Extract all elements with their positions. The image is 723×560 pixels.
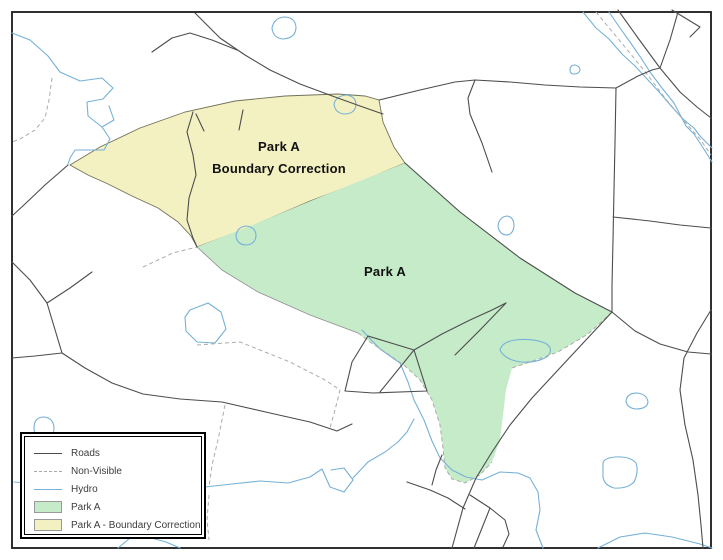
legend-row-non-visible: Non-Visible <box>25 462 201 480</box>
park-a-label: Park A <box>364 261 406 283</box>
pond-tiny-topright <box>570 65 580 74</box>
dashed-upper-left <box>12 78 52 142</box>
legend-box: Roads Non-Visible Hydro Park A <box>20 432 206 539</box>
correction-label-line1: Park A <box>212 136 346 158</box>
road-vertical-right <box>612 88 616 312</box>
road-left-edge-link <box>12 353 62 358</box>
legend-row-correction: Park A - Boundary Correction <box>25 516 201 534</box>
road-left-long <box>62 353 352 431</box>
roads-line-swatch <box>34 453 62 454</box>
road-left-steep <box>12 262 62 353</box>
correction-fill-swatch <box>34 519 62 531</box>
stream-bottom-right <box>598 533 712 548</box>
road-topright-spur <box>660 12 678 68</box>
legend-row-roads: Roads <box>25 444 201 462</box>
road-lower-connector <box>407 482 465 509</box>
road-left-join <box>47 272 92 303</box>
hydro-line-swatch <box>34 489 62 490</box>
river-bank-east <box>609 12 712 162</box>
pond-top-center <box>272 17 296 39</box>
road-topleft-branch <box>152 33 237 52</box>
non-visible-line-swatch <box>34 471 62 472</box>
road-right-curvy <box>680 310 711 548</box>
legend-row-hydro: Hydro <box>25 480 201 498</box>
river-bank-west <box>583 12 712 148</box>
legend-label-roads: Roads <box>71 448 100 459</box>
road-lower-branch <box>470 495 509 547</box>
dashed-left-center <box>197 342 340 428</box>
dashed-below-stream <box>207 495 209 540</box>
legend-label-hydro: Hydro <box>71 484 98 495</box>
road-short-vertical <box>432 455 442 485</box>
pond-right-small <box>626 393 648 409</box>
map-canvas: Park A Boundary Correction Park A Roads … <box>0 0 723 560</box>
dashed-to-park-tip <box>143 247 197 267</box>
road-lower-parallel <box>474 508 490 548</box>
legend-inner-border: Roads Non-Visible Hydro Park A <box>24 436 202 535</box>
road-river-crossing <box>618 10 711 118</box>
legend-label-park-a: Park A <box>71 502 100 513</box>
road-top-horizontal <box>379 80 616 100</box>
road-from-tip <box>12 165 68 216</box>
legend-row-park-a: Park A <box>25 498 201 516</box>
park-a-fill-swatch <box>34 501 62 513</box>
dashed-below-road <box>209 405 225 487</box>
legend-label-non-visible: Non-Visible <box>71 466 122 477</box>
road-junction-link <box>616 68 660 88</box>
correction-label: Park A Boundary Correction <box>212 136 346 180</box>
pond-right-lower <box>603 457 637 488</box>
stream-upper-left <box>12 33 114 164</box>
correction-label-line2: Boundary Correction <box>212 158 346 180</box>
road-right-horizontal <box>613 217 711 228</box>
road-branch-down <box>468 80 492 172</box>
road-corner-curve-east <box>612 312 711 354</box>
legend-label-correction: Park A - Boundary Correction <box>71 520 201 531</box>
pond-left-center <box>185 303 226 343</box>
road-topright-wedge <box>672 10 700 37</box>
pond-center-right <box>498 216 514 235</box>
